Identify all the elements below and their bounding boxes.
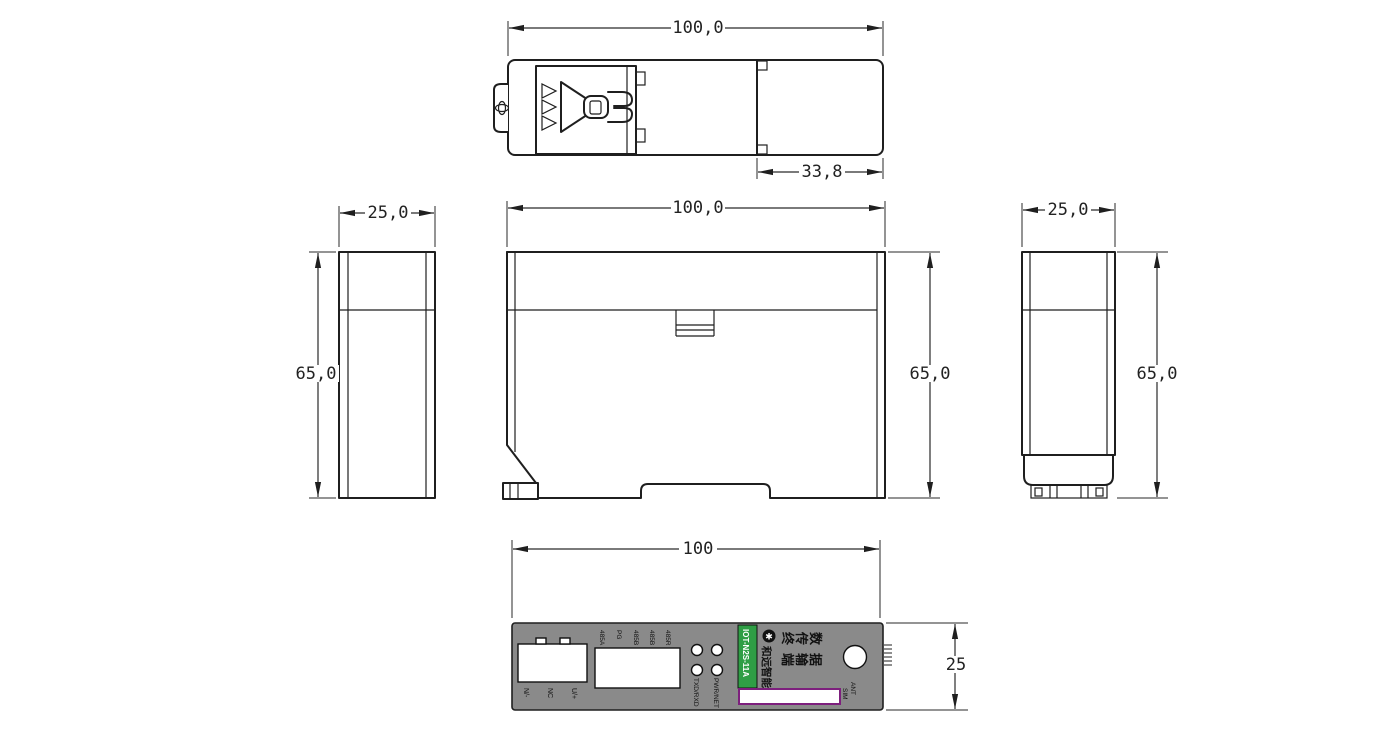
sim-label: SIM [841, 688, 848, 700]
right-side-view: 25,0 65,0 [1022, 200, 1180, 498]
left-side-view: 25,0 65,0 [293, 203, 435, 498]
top-width-dim: 100,0 [672, 18, 723, 38]
product-name: 数据 传输 终端 [780, 631, 823, 674]
svg-text:数据: 数据 [808, 632, 823, 674]
front-height-dim: 65,0 [910, 364, 951, 384]
top-clip-dim: 33,8 [802, 162, 843, 182]
front-width-dim: 100,0 [672, 198, 723, 218]
engineering-drawing-canvas: 100,0 33,8 25,0 65,0 [0, 0, 1400, 730]
model-label: IOT-N2S-11A [741, 629, 750, 677]
antenna-thread-marks [884, 645, 892, 665]
io-terminal-label: PG [615, 630, 622, 639]
bottom-height-dim: 25 [946, 655, 966, 675]
front-release-tab [676, 310, 714, 336]
right-width-dim: 25,0 [1048, 200, 1089, 220]
led-pwr-net [712, 645, 723, 656]
power-terminal-label: U/+ [570, 688, 577, 699]
ant-label: ANT [849, 682, 856, 695]
svg-text:传输: 传输 [794, 631, 809, 674]
led-pwr-net [712, 665, 723, 676]
front-view: 100,0 65,0 [503, 198, 953, 499]
left-height-dim: 65,0 [296, 364, 337, 384]
io-terminal-label: 485B [632, 630, 639, 645]
brand-name: 和远智能 [760, 645, 773, 688]
io-terminal-label: 485A [598, 630, 605, 646]
top-view: 100,0 33,8 [494, 18, 883, 182]
power-terminal-block [518, 644, 587, 682]
clip-latch-knob [584, 96, 608, 118]
sim-slot [739, 689, 840, 704]
led-label: TXD/RXD [692, 678, 699, 707]
bottom-connector-housing [1024, 455, 1113, 485]
power-terminal-label: N/- [522, 688, 529, 698]
antenna-hole [844, 646, 867, 669]
din-clip-foot [503, 483, 538, 499]
brand-logo-glyph: ✱ [765, 632, 773, 642]
top-view-body [508, 60, 883, 155]
left-view-body [339, 252, 435, 498]
bottom-width-dim: 100 [683, 539, 714, 559]
led-label: PWR/NET [712, 678, 719, 708]
io-terminal-label: 485R [664, 630, 671, 646]
right-view-body [1022, 252, 1115, 455]
led-txd-rxd [692, 665, 703, 676]
dimension-drawing: 100,0 33,8 25,0 65,0 [0, 0, 1400, 730]
bottom-panel-view: N/- NC U/+ 485A PG 485B 485B 485R TXD/RX… [512, 539, 971, 710]
led-txd-rxd [692, 645, 703, 656]
power-terminal-label: NC [546, 688, 553, 698]
right-height-dim: 65,0 [1137, 364, 1178, 384]
svg-text:终端: 终端 [780, 632, 795, 674]
left-width-dim: 25,0 [368, 203, 409, 223]
io-terminal-block [595, 648, 680, 688]
front-view-body [507, 252, 885, 498]
io-terminal-label: 485B [648, 630, 655, 645]
